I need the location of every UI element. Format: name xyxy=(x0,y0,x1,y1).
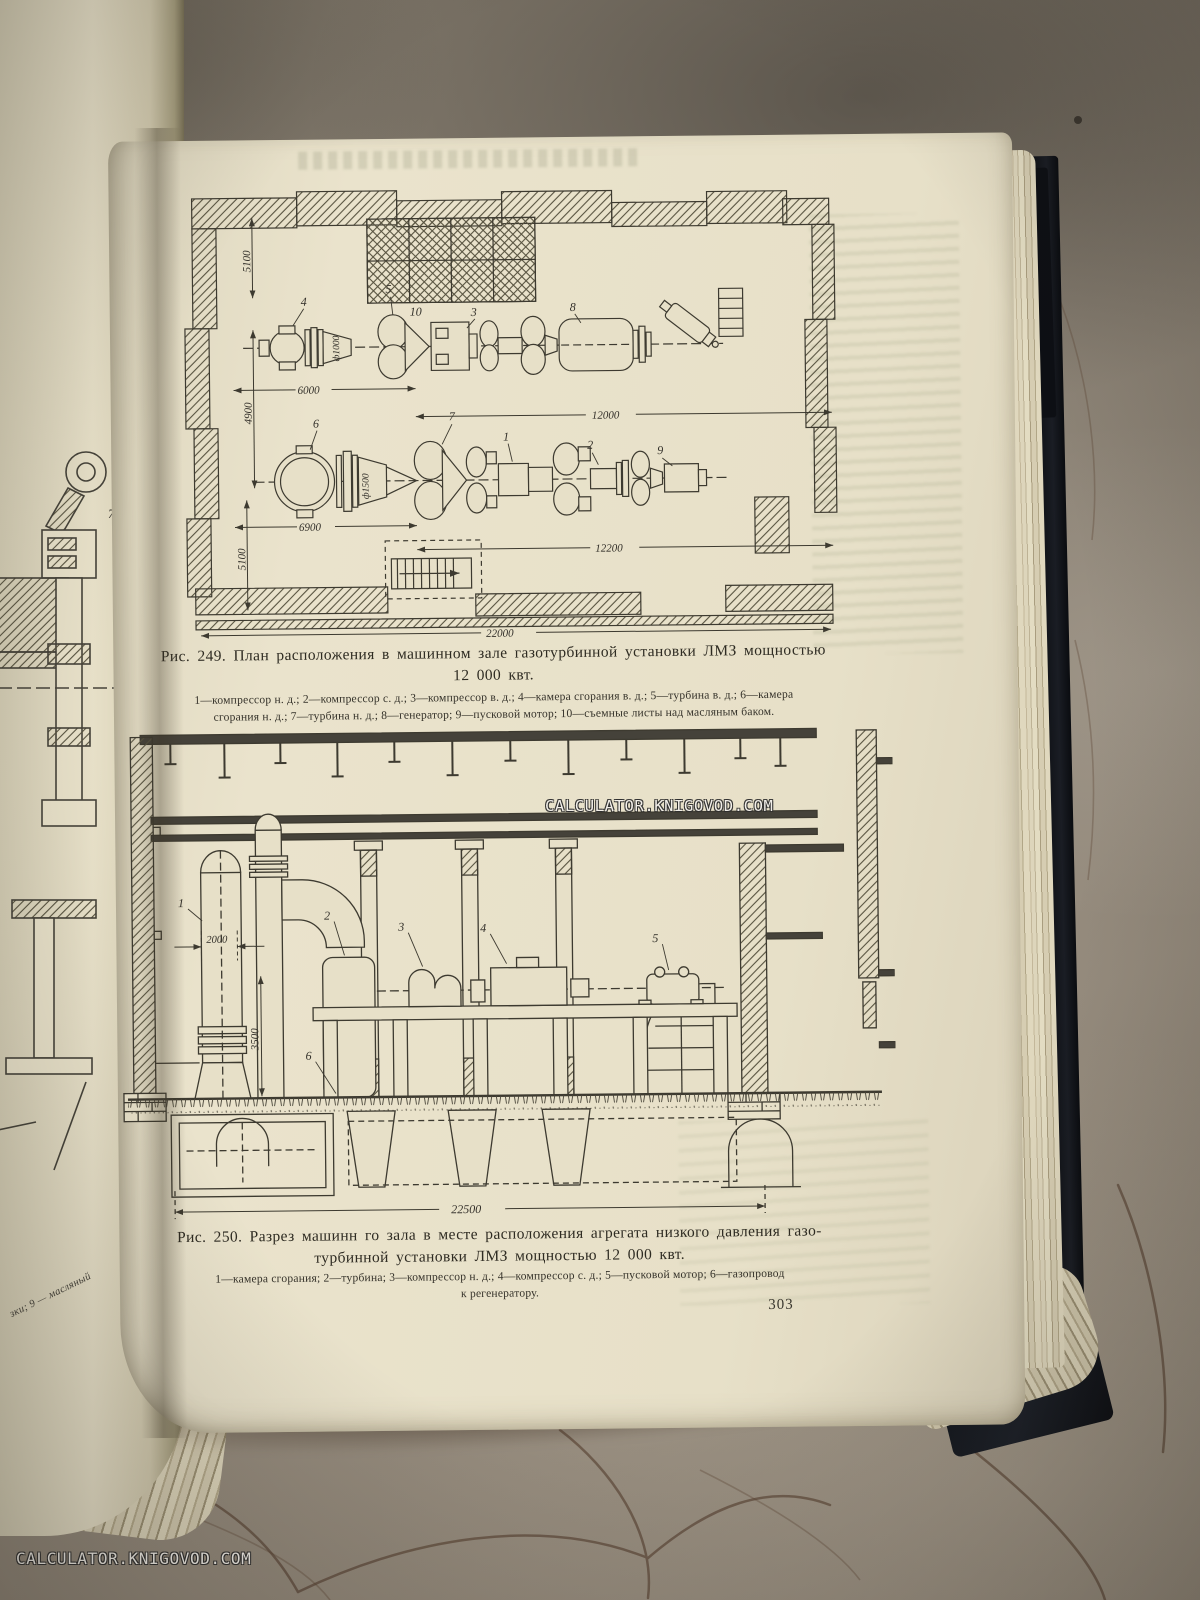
figure-249-caption: Рис. 249. План расположения в машинном з… xyxy=(113,639,873,691)
plan-grille xyxy=(719,288,744,336)
section-roof xyxy=(140,728,817,841)
plan-dim-5100-top: 5100 xyxy=(241,250,253,273)
left-page-caption-fragment: зки; 9 — масляный xyxy=(8,1271,93,1320)
section-foundation xyxy=(171,1107,801,1220)
book-page: 4 5 10 3 8 6 7 1 2 9 6000 12000 6900 122… xyxy=(108,132,1025,1433)
figure-249-legend: 1—компрессор н. д.; 2—компрессор с. д.; … xyxy=(114,686,874,727)
section-item-label-3: 3 xyxy=(397,920,404,934)
plan-dim-6000: 6000 xyxy=(298,385,321,397)
plan-dim-12000: 12000 xyxy=(592,409,620,421)
section-dim-3500: 3500 xyxy=(249,1028,261,1052)
section-item-label-2: 2 xyxy=(324,909,330,923)
plan-item-label-10: 10 xyxy=(410,305,422,319)
plan-oil-tank-covers xyxy=(367,217,536,303)
plan-item-label-3: 3 xyxy=(470,305,477,319)
plan-dim-22000: 22000 xyxy=(486,628,514,640)
section-item-label-5: 5 xyxy=(652,931,658,945)
plan-upper-train xyxy=(243,296,724,381)
figure-250-caption: Рис. 250. Разрез машинн го зала в месте … xyxy=(119,1220,879,1272)
plan-dim-4900: 4900 xyxy=(243,402,255,425)
page-number: 303 xyxy=(768,1297,794,1314)
plan-dim-12200: 12200 xyxy=(595,542,623,554)
plan-dim-6900: 6900 xyxy=(299,522,322,534)
section-item-label-6: 6 xyxy=(305,1049,311,1063)
plan-item-label-6: 6 xyxy=(313,417,319,431)
plan-item-label-9: 9 xyxy=(657,443,663,457)
figure-250-section-drawing: 1 2 3 4 5 6 2000 3500 22500 xyxy=(112,724,897,1227)
plan-item-label-5: 5 xyxy=(385,282,391,296)
section-item-label-4: 4 xyxy=(480,921,486,935)
plan-item-label-8: 8 xyxy=(570,300,576,314)
photo-of-open-book: 7 зки; 9 — масляный xyxy=(0,0,1200,1600)
figure-249-plan-drawing: 4 5 10 3 8 6 7 1 2 9 6000 12000 6900 122… xyxy=(181,184,841,646)
book-gutter-shadow xyxy=(135,128,188,1438)
figure-250-legend: 1—камера сгорания; 2—турбина; 3—компресс… xyxy=(120,1265,880,1306)
section-dim-2000: 2000 xyxy=(206,935,228,946)
plan-item-label-2: 2 xyxy=(587,438,593,452)
watermark-bottom-left: CALCULATOR.KNIGOVOD.COM xyxy=(16,1549,251,1568)
section-dim-22500: 22500 xyxy=(451,1202,481,1216)
plan-dim-dia1000: ф1000 xyxy=(331,335,342,361)
plan-item-label-1: 1 xyxy=(503,430,509,444)
plan-item-label-7: 7 xyxy=(449,409,456,423)
watermark-center: CALCULATOR.KNIGOVOD.COM xyxy=(545,797,773,815)
plan-dim-5100-bot: 5100 xyxy=(236,548,248,571)
plan-item-label-4: 4 xyxy=(301,295,307,309)
plan-dim-dia1500: ф1500 xyxy=(360,473,371,499)
show-through-text xyxy=(298,148,638,170)
